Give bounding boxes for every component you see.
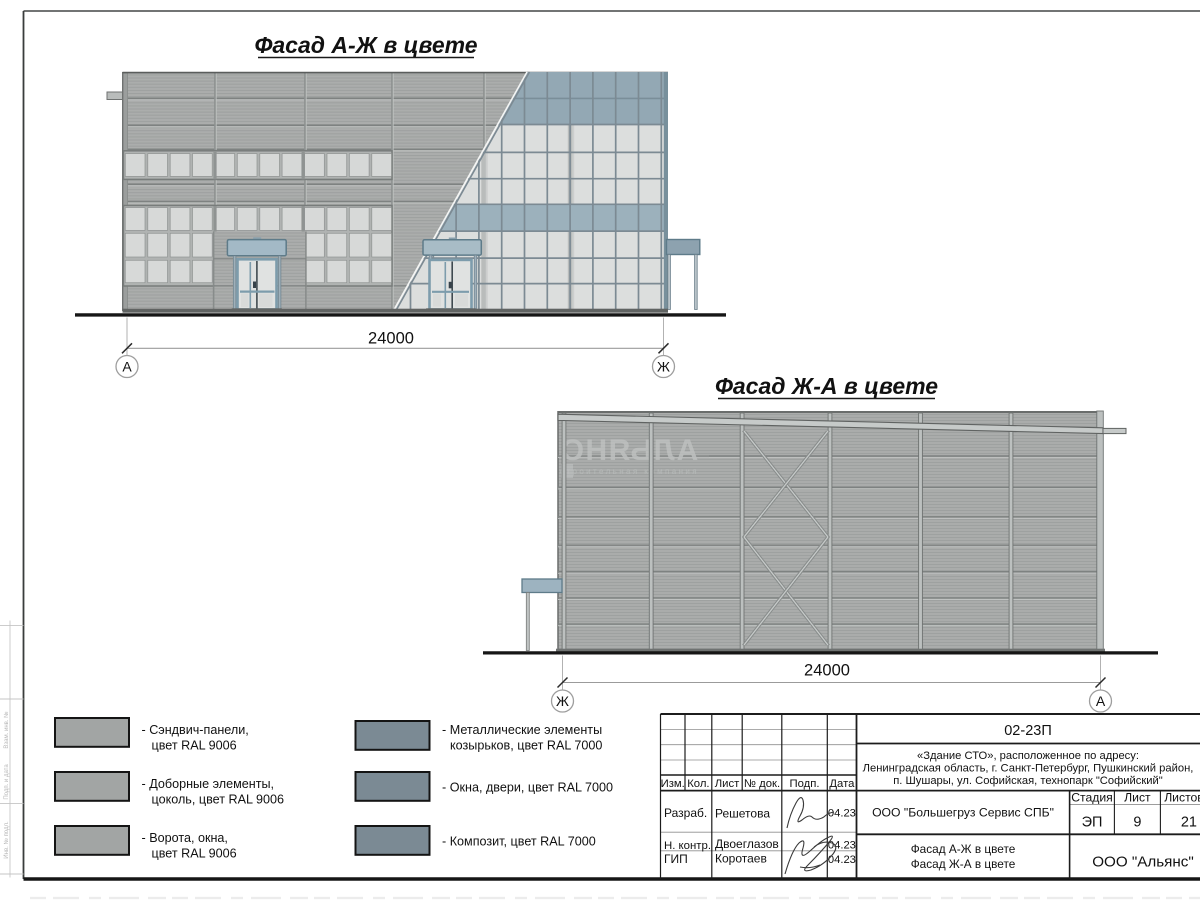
svg-text:Лист: Лист xyxy=(715,778,740,790)
svg-text:Инв. № подл.: Инв. № подл. xyxy=(3,821,10,859)
svg-text:цвет RAL 9006: цвет RAL 9006 xyxy=(152,739,237,753)
svg-text:А: А xyxy=(1096,693,1106,709)
svg-text:Ж: Ж xyxy=(556,693,569,709)
svg-text:Фасад А-Ж в цвете: Фасад А-Ж в цвете xyxy=(254,32,477,58)
svg-text:- Сэндвич-панели,: - Сэндвич-панели, xyxy=(142,723,249,737)
svg-text:Фасад Ж-А в цвете: Фасад Ж-А в цвете xyxy=(911,857,1016,871)
svg-text:№ док.: № док. xyxy=(744,778,780,790)
svg-text:Листов: Листов xyxy=(1164,791,1200,805)
svg-text:04.23: 04.23 xyxy=(828,808,856,820)
svg-text:А: А xyxy=(122,359,132,375)
svg-text:Коротаев: Коротаев xyxy=(715,852,767,866)
svg-text:ООО "Альянс": ООО "Альянс" xyxy=(1092,854,1194,871)
svg-text:Фасад Ж-А в цвете: Фасад Ж-А в цвете xyxy=(715,373,938,399)
svg-text:- Металлические элементы: - Металлические элементы xyxy=(442,723,602,737)
svg-text:Н. контр.: Н. контр. xyxy=(664,840,711,852)
svg-text:ЭП: ЭП xyxy=(1082,815,1103,831)
svg-text:Кол.: Кол. xyxy=(687,778,709,790)
svg-text:Изм.: Изм. xyxy=(661,778,685,790)
svg-text:цвет RAL 9006: цвет RAL 9006 xyxy=(152,847,237,861)
svg-text:Стадия: Стадия xyxy=(1071,791,1113,805)
svg-text:«Здание СТО», расположенное по: «Здание СТО», расположенное по адресу: xyxy=(917,750,1139,762)
svg-text:Двоеглазов: Двоеглазов xyxy=(715,837,779,851)
svg-text:21: 21 xyxy=(1181,815,1197,831)
svg-text:24000: 24000 xyxy=(368,330,414,348)
svg-text:9: 9 xyxy=(1133,815,1141,831)
svg-text:п. Шушары, ул. Софийская, техн: п. Шушары, ул. Софийская, технопарк "Соф… xyxy=(893,775,1163,787)
svg-text:Лист: Лист xyxy=(1124,791,1151,805)
svg-text:Ж: Ж xyxy=(657,359,670,375)
svg-text:- Композит, цвет RAL 7000: - Композит, цвет RAL 7000 xyxy=(442,835,596,849)
svg-text:- Ворота, окна,: - Ворота, окна, xyxy=(142,831,228,845)
svg-text:ООО "Большегруз Сервис СПБ": ООО "Большегруз Сервис СПБ" xyxy=(872,806,1054,820)
svg-text:козырьков, цвет RAL 7000: козырьков, цвет RAL 7000 xyxy=(450,739,602,753)
svg-text:Ленинградская область, г. Санк: Ленинградская область, г. Санкт-Петербур… xyxy=(863,763,1194,775)
svg-text:Решетова: Решетова xyxy=(715,807,770,821)
svg-text:- Окна, двери, цвет RAL 7000: - Окна, двери, цвет RAL 7000 xyxy=(442,781,613,795)
svg-text:02-23П: 02-23П xyxy=(1004,723,1052,739)
svg-text:Подп.: Подп. xyxy=(789,778,819,790)
svg-text:Дата: Дата xyxy=(829,778,855,790)
svg-text:- Доборные элементы,: - Доборные элементы, xyxy=(142,777,275,791)
svg-text:Подп. и дата: Подп. и дата xyxy=(4,764,10,800)
svg-text:Взам. инв. №: Взам. инв. № xyxy=(3,711,10,748)
svg-text:04.23: 04.23 xyxy=(828,840,856,852)
svg-text:Разраб.: Разраб. xyxy=(664,806,707,820)
svg-text:ГИП: ГИП xyxy=(664,852,688,866)
svg-text:24000: 24000 xyxy=(804,662,850,680)
svg-text:Фасад А-Ж в цвете: Фасад А-Ж в цвете xyxy=(911,842,1016,856)
svg-text:цоколь, цвет RAL 9006: цоколь, цвет RAL 9006 xyxy=(152,793,285,807)
